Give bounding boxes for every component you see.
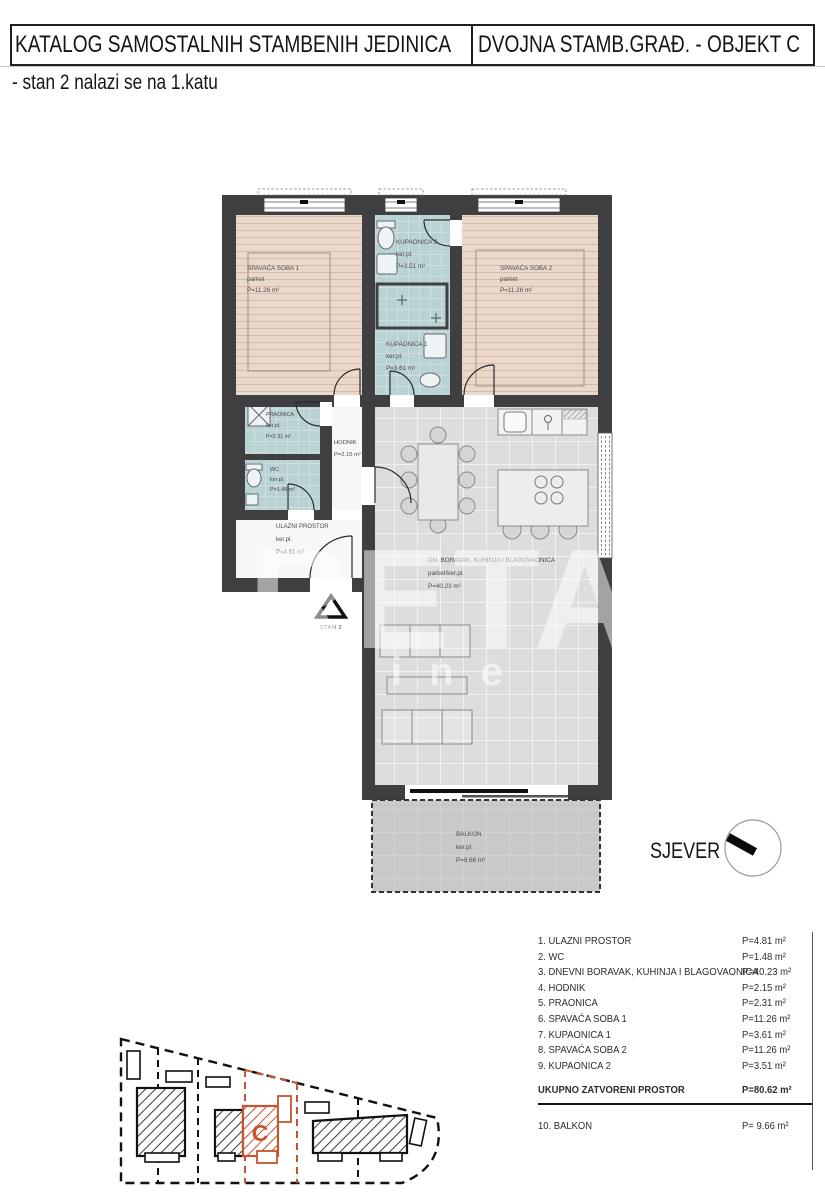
label-ulazni-name: ULAZNI PROSTOR: [276, 524, 329, 530]
row-label: 1. ULAZNI PROSTOR: [538, 935, 631, 947]
label-praonica-area: P=2.31 m²: [266, 434, 291, 440]
label-hodnik-area: P=2.15 m²: [334, 452, 361, 458]
entry-marker-label: STAN 2: [320, 625, 342, 631]
row-value: P=3.51 m²: [742, 1060, 786, 1072]
table-row: 4. HODNIKP=2.15 m²: [538, 981, 812, 997]
label-spavaca1-area: P=11.26 m²: [247, 287, 279, 294]
row-label: 9. KUPAONICA 2: [538, 1060, 611, 1072]
table-row: 5. PRAONICAP=2.31 m²: [538, 996, 812, 1012]
label-balkon-floor: ker.pl.: [456, 844, 473, 851]
row-label: 6. SPAVAĆA SOBA 1: [538, 1013, 627, 1025]
label-kupaonica2-floor: ker.pl.: [396, 251, 413, 258]
entry-triangle-icon: [317, 596, 345, 617]
label-balkon-name: BALKON: [456, 831, 482, 838]
row-value: P=2.31 m²: [742, 997, 786, 1009]
catalog-page: KATALOG SAMOSTALNIH STAMBENIH JEDINICA D…: [0, 0, 825, 1200]
row-label: 7. KUPAONICA 1: [538, 1029, 611, 1041]
label-living-area: P=40.23 m²: [428, 583, 461, 590]
toilet-icon-k1: [420, 373, 440, 387]
label-spavaca2-name: SPAVAĆA SOBA 2: [500, 263, 553, 272]
object-title: DVOJNA STAMB.GRAĐ. - OBJEKT C: [478, 31, 800, 59]
site-unit-label: C: [252, 1120, 269, 1146]
washbasin-icon-k2: [377, 254, 397, 274]
label-wc-name: WC: [270, 467, 279, 473]
row-value: P=1.48 m²: [742, 951, 786, 963]
label-spavaca1-floor: parket: [247, 276, 265, 283]
window-right-wall: [598, 433, 612, 558]
window-top-2: [379, 189, 423, 212]
site-plan-drawing: C: [100, 1025, 450, 1195]
label-spavaca2-floor: parket: [500, 276, 518, 283]
page-subtitle: - stan 2 nalazi se na 1.katu: [12, 71, 218, 95]
building-a: [137, 1088, 185, 1156]
row-value: P=11.26 m²: [742, 1044, 790, 1056]
row-label: 4. HODNIK: [538, 982, 585, 994]
washbasin-icon-wc: [246, 494, 258, 505]
sink-icon: [504, 412, 526, 432]
label-spavaca1-name: SPAVAĆA SOBA 1: [247, 263, 300, 272]
label-kupaonica2-name: KUPAONICA 2: [396, 239, 438, 246]
header-divider-rule: [0, 66, 825, 67]
catalog-title: KATALOG SAMOSTALNIH STAMBENIH JEDINICA: [15, 31, 451, 59]
entry-marker: STAN 2: [317, 596, 345, 631]
row-label: 8. SPAVAĆA SOBA 2: [538, 1044, 627, 1056]
header-cell-object: DVOJNA STAMB.GRAĐ. - OBJEKT C: [473, 26, 813, 64]
floor-hodnik: [332, 407, 362, 510]
label-praonica-floor: ker.pl.: [266, 423, 280, 429]
table-row: 1. ULAZNI PROSTORP=4.81 m²: [538, 934, 812, 950]
row-label: 2. WC: [538, 951, 564, 963]
row-value: P=40.23 m²: [742, 966, 791, 978]
label-praonica-name: PRAONICA: [266, 412, 295, 418]
label-wc-floor: ker.pl.: [270, 477, 284, 483]
floor-spavaca-soba-1: [236, 215, 362, 395]
table-total-row: UKUPNO ZATVORENI PROSTORP=80.62 m²: [538, 1083, 812, 1105]
kitchen-counter: [498, 409, 587, 435]
site-buildings: [137, 1088, 407, 1156]
floor-spavaca-soba-2: [462, 215, 598, 395]
table-row: 3. DNEVNI BORAVAK, KUHINJA I BLAGOVAONIC…: [538, 965, 812, 981]
row-value: P=3.61 m²: [742, 1029, 786, 1041]
total-label: UKUPNO ZATVORENI PROSTOR: [538, 1084, 685, 1096]
label-ulazni-area: P=4.81 m²: [276, 550, 304, 556]
row-label: 3. DNEVNI BORAVAK, KUHINJA I BLAGOVAONIC…: [538, 966, 759, 978]
row-value: P=2.15 m²: [742, 982, 786, 994]
label-kupaonica1-area: P=3.61 m²: [386, 365, 415, 372]
label-balkon-area: P=9.66 m²: [456, 857, 485, 864]
row-label: 5. PRAONICA: [538, 997, 598, 1009]
window-top-1: [258, 189, 351, 212]
header-cell-catalog: KATALOG SAMOSTALNIH STAMBENIH JEDINICA: [12, 26, 473, 64]
table-row: 2. WCP=1.48 m²: [538, 950, 812, 966]
table-row: 7. KUPAONICA 1P=3.61 m²: [538, 1028, 812, 1044]
row-value: P= 9.66 m²: [742, 1120, 788, 1132]
total-value: P=80.62 m²: [742, 1084, 792, 1096]
row-value: P=11.26 m²: [742, 1013, 790, 1025]
building-b: [215, 1110, 243, 1156]
floor-plan-drawing: SPAVAĆA SOBA 1 parket P=11.26 m² KUPAONI…: [210, 188, 620, 904]
label-hodnik-name: HODNIK: [334, 440, 357, 446]
table-row: 6. SPAVAĆA SOBA 1P=11.26 m²: [538, 1012, 812, 1028]
label-kupaonica1-name: KUPAONICA 1: [386, 341, 428, 348]
label-wc-area: P=1.48 m²: [270, 487, 295, 493]
building-d: [313, 1115, 407, 1153]
kitchen-island: [498, 470, 588, 526]
area-table: 1. ULAZNI PROSTORP=4.81 m² 2. WCP=1.48 m…: [538, 934, 812, 1135]
north-label: SJEVER: [650, 838, 720, 864]
header-bar: KATALOG SAMOSTALNIH STAMBENIH JEDINICA D…: [10, 24, 815, 66]
north-compass-icon: [713, 813, 787, 887]
toilet-icon-wc: [247, 469, 261, 487]
table-row: 9. KUPAONICA 2P=3.51 m²: [538, 1059, 812, 1075]
label-ulazni-floor: ker.pl.: [276, 537, 292, 543]
table-balkon-row: 10. BALKONP= 9.66 m²: [538, 1119, 812, 1135]
dining-table: [418, 444, 458, 520]
toilet-icon-k2: [378, 227, 394, 249]
table-right-border: [812, 932, 813, 1170]
window-top-3: [472, 189, 566, 212]
label-kupaonica2-area: P=3.51 m²: [396, 263, 425, 270]
row-value: P=4.81 m²: [742, 935, 786, 947]
row-label: 10. BALKON: [538, 1120, 592, 1132]
label-kupaonica1-floor: ker.pl.: [386, 353, 403, 360]
label-spavaca2-area: P=11.26 m²: [500, 287, 532, 294]
label-living-name: DN. BORAVAK, KUHINJA I BLAGOVAONICA: [428, 557, 556, 564]
table-row: 8. SPAVAĆA SOBA 2P=11.26 m²: [538, 1043, 812, 1059]
balcony-sliding-door: [405, 785, 568, 801]
label-living-floor: parket/ker.pl.: [428, 570, 464, 577]
balcony: [372, 800, 600, 892]
